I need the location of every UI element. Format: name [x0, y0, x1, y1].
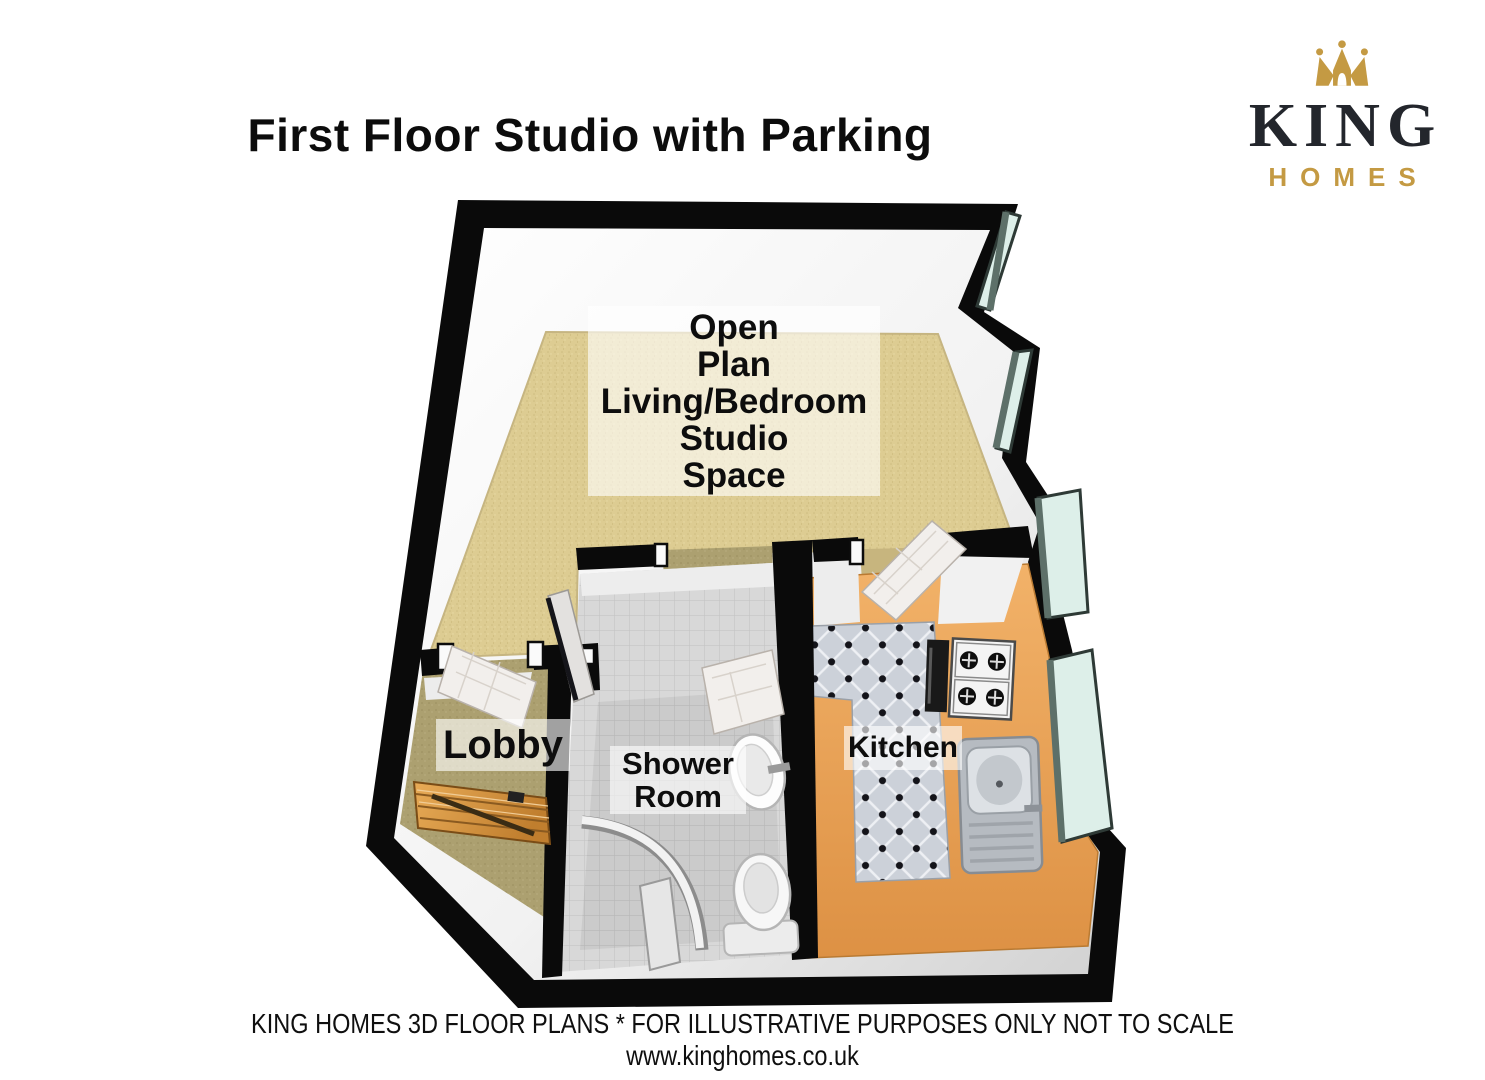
page: First Floor Studio with Parking KING HOM…: [0, 0, 1485, 1080]
kitchen-sink: [958, 737, 1045, 874]
room-label-line: Studio: [588, 420, 880, 457]
room-label-line: Lobby: [436, 720, 570, 770]
kitchen-top-wall-face-left: [814, 560, 860, 626]
room-label-kitchen: Kitchen: [844, 726, 962, 770]
page-title: First Floor Studio with Parking: [0, 108, 1180, 162]
oven: [925, 640, 949, 713]
brand-subtitle: HOMES: [1228, 162, 1456, 193]
footer-website: www.kinghomes.co.uk: [119, 1040, 1366, 1072]
room-label-lobby: Lobby: [436, 719, 570, 771]
room-label-line: Plan: [588, 346, 880, 383]
footer-disclaimer: KING HOMES 3D FLOOR PLANS * FOR ILLUSTRA…: [119, 1008, 1366, 1040]
room-label-line: Shower: [610, 747, 746, 780]
room-label-line: Room: [610, 780, 746, 813]
room-label-line: Living/Bedroom: [588, 383, 880, 420]
room-label-open-plan: Open Plan Living/Bedroom Studio Space: [588, 306, 880, 496]
room-label-line: Kitchen: [844, 727, 962, 769]
gas-hob: [949, 638, 1015, 719]
room-label-line: Open: [588, 309, 880, 346]
brand-name: KING: [1228, 94, 1456, 158]
room-label-shower-room: Shower Room: [610, 746, 746, 814]
brand-logo: KING HOMES: [1228, 34, 1456, 193]
room-label-line: Space: [588, 457, 880, 494]
crown-icon: [1310, 34, 1374, 94]
